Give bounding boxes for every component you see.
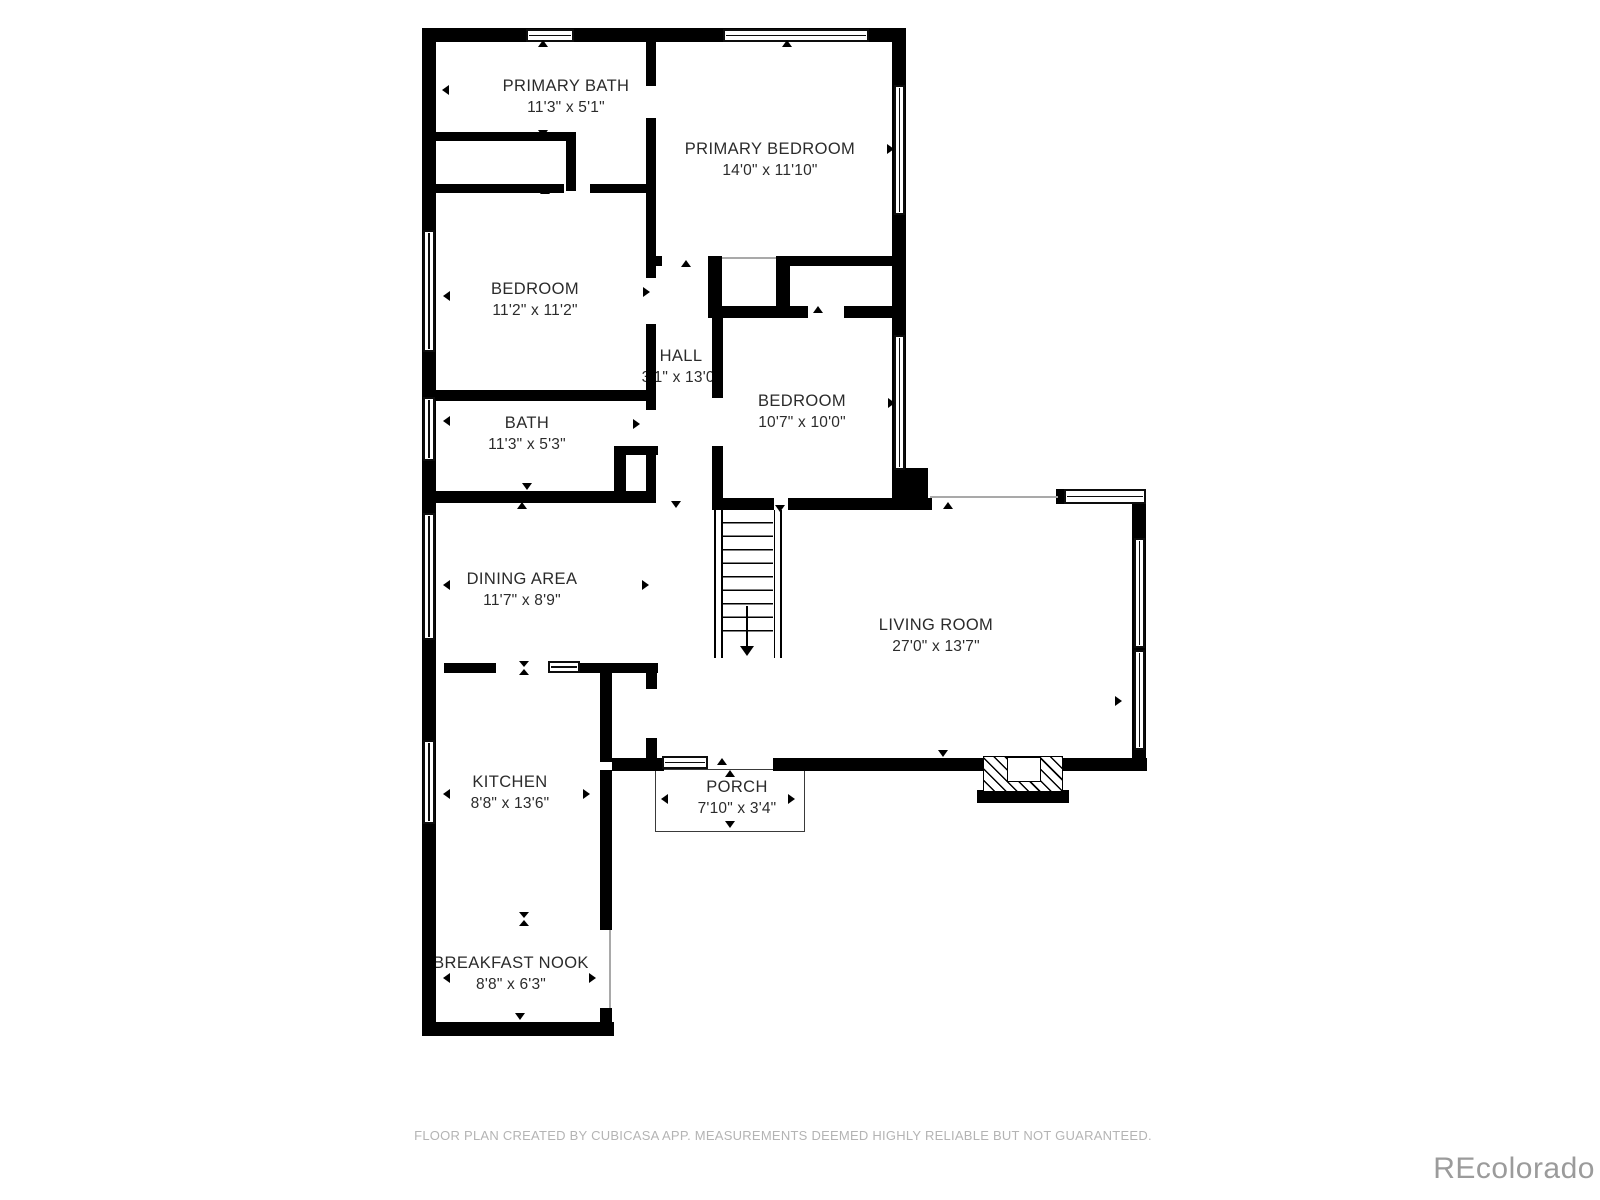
- wall: [792, 306, 808, 318]
- opening-line: [930, 496, 1058, 498]
- door-swing-marker-icon: [515, 1013, 525, 1020]
- staircase: [714, 510, 782, 658]
- door-swing-marker-icon: [540, 187, 550, 194]
- opening-line: [609, 930, 611, 1008]
- door-swing-marker-icon: [661, 794, 668, 804]
- fireplace-firebox: [1007, 757, 1041, 782]
- window: [423, 513, 435, 640]
- floor-plan: PRIMARY BATH 11'3" x 5'1" PRIMARY BEDROO…: [0, 0, 1600, 1200]
- room-name: LIVING ROOM: [776, 616, 1096, 635]
- room-name: PRIMARY BEDROOM: [610, 140, 930, 159]
- wall: [714, 306, 794, 318]
- door-swing-marker-icon: [442, 85, 449, 95]
- window: [894, 85, 905, 215]
- room-name: PORCH: [577, 778, 897, 797]
- wall: [600, 1008, 612, 1036]
- room-dimensions: 14'0" x 11'10": [610, 162, 930, 180]
- wall: [600, 663, 612, 762]
- door-swing-marker-icon: [671, 501, 681, 508]
- window: [548, 661, 580, 673]
- door-swing-marker-icon: [443, 291, 450, 301]
- room-name: PRIMARY BATH: [406, 77, 726, 96]
- door-swing-marker-icon: [725, 770, 735, 777]
- wall: [646, 663, 657, 689]
- door-swing-marker-icon: [443, 789, 450, 799]
- room-dimensions: 7'10" x 3'4": [577, 800, 897, 818]
- door-swing-marker-icon: [443, 580, 450, 590]
- door-swing-marker-icon: [517, 502, 527, 509]
- door-swing-marker-icon: [888, 398, 895, 408]
- wall: [422, 390, 656, 401]
- room-label-primary-bath: PRIMARY BATH 11'3" x 5'1": [406, 77, 726, 117]
- room-name: DINING AREA: [362, 570, 682, 589]
- door-swing-marker-icon: [538, 130, 548, 137]
- door-swing-marker-icon: [887, 144, 894, 154]
- door-swing-marker-icon: [443, 973, 450, 983]
- wall: [844, 306, 892, 318]
- door-swing-marker-icon: [642, 580, 649, 590]
- room-name: BEDROOM: [642, 392, 962, 411]
- wall: [646, 42, 656, 86]
- room-label-primary-bedroom: PRIMARY BEDROOM 14'0" x 11'10": [610, 140, 930, 180]
- door-swing-marker-icon: [788, 794, 795, 804]
- door-swing-marker-icon: [775, 505, 785, 512]
- room-label-porch: PORCH 7'10" x 3'4": [577, 778, 897, 818]
- door-swing-marker-icon: [643, 287, 650, 297]
- wall: [773, 758, 985, 771]
- wall: [892, 498, 932, 510]
- window: [423, 740, 435, 824]
- wall: [789, 256, 892, 266]
- door-swing-marker-icon: [589, 973, 596, 983]
- room-label-living-room: LIVING ROOM 27'0" x 13'7": [776, 616, 1096, 656]
- opening-marker-icon: [518, 912, 530, 926]
- room-label-bedroom-2: BEDROOM 10'7" x 10'0": [642, 392, 962, 432]
- door-swing-marker-icon: [583, 789, 590, 799]
- disclaimer-text: FLOOR PLAN CREATED BY CUBICASA APP. MEAS…: [383, 1128, 1183, 1143]
- room-dimensions: 3'1" x 13'0": [521, 369, 841, 387]
- wall: [422, 1022, 614, 1036]
- door-swing-marker-icon: [943, 502, 953, 509]
- opening-line: [722, 257, 776, 259]
- room-dimensions: 10'7" x 10'0": [642, 414, 962, 432]
- room-dimensions: 11'7" x 8'9": [362, 592, 682, 610]
- room-label-breakfast-nook: BREAKFAST NOOK 8'8" x 6'3": [351, 954, 671, 994]
- wall: [422, 491, 656, 503]
- door-swing-marker-icon: [1115, 696, 1122, 706]
- wall: [712, 498, 774, 510]
- window: [894, 335, 905, 470]
- room-dimensions: 8'8" x 6'3": [351, 976, 671, 994]
- door-swing-marker-icon: [813, 306, 823, 313]
- room-name: HALL: [521, 347, 841, 366]
- window: [1064, 489, 1146, 504]
- wall: [436, 132, 576, 141]
- wall: [712, 318, 723, 398]
- stair-treads: [723, 510, 773, 642]
- door-swing-marker-icon: [938, 750, 948, 757]
- stair-rail: [774, 510, 776, 658]
- room-dimensions: 27'0" x 13'7": [776, 638, 1096, 656]
- wall: [566, 141, 576, 191]
- watermark-logo: REcolorado: [1385, 1152, 1595, 1186]
- room-dimensions: 11'3" x 5'1": [406, 99, 726, 117]
- wall: [646, 738, 657, 762]
- stair-direction-arrow-icon: [740, 646, 754, 656]
- room-label-dining-area: DINING AREA 11'7" x 8'9": [362, 570, 682, 610]
- window: [1134, 650, 1145, 750]
- window: [423, 397, 435, 461]
- wall: [614, 446, 658, 455]
- window: [662, 756, 708, 769]
- wall: [444, 663, 496, 673]
- door-swing-marker-icon: [633, 419, 640, 429]
- wall: [788, 498, 892, 510]
- window: [723, 29, 869, 42]
- door-swing-marker-icon: [782, 40, 792, 47]
- window: [1134, 538, 1145, 648]
- door-swing-marker-icon: [681, 260, 691, 267]
- door-swing-marker-icon: [443, 416, 450, 426]
- window: [526, 29, 574, 42]
- wall: [646, 256, 662, 266]
- wall: [906, 468, 928, 498]
- window: [423, 230, 435, 352]
- room-name: BREAKFAST NOOK: [351, 954, 671, 973]
- door-swing-marker-icon: [717, 758, 727, 765]
- wall: [646, 118, 656, 140]
- stair-direction-line: [746, 606, 748, 648]
- door-swing-marker-icon: [522, 483, 532, 490]
- room-label-hall: HALL 3'1" x 13'0": [521, 347, 841, 387]
- door-swing-marker-icon: [538, 40, 548, 47]
- door-swing-marker-icon: [725, 821, 735, 828]
- door-swing-marker-icon: [781, 261, 791, 268]
- wall: [600, 770, 612, 930]
- opening-marker-icon: [518, 661, 530, 675]
